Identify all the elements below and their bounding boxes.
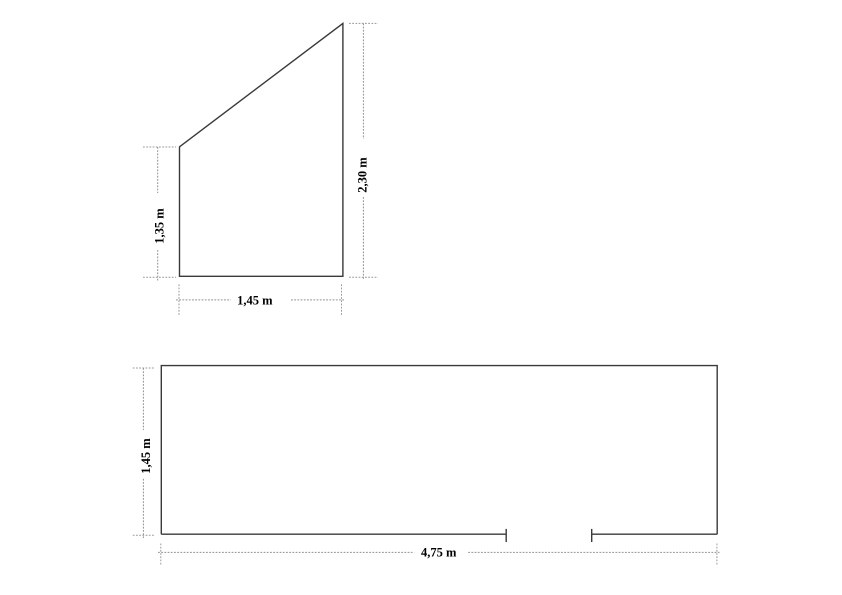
svg-text:4,75 m: 4,75 m: [421, 545, 457, 559]
svg-text:1,35 m: 1,35 m: [153, 208, 167, 244]
svg-text:2,30 m: 2,30 m: [355, 157, 369, 193]
svg-text:1,45 m: 1,45 m: [139, 438, 153, 474]
svg-text:1,45 m: 1,45 m: [237, 293, 273, 307]
